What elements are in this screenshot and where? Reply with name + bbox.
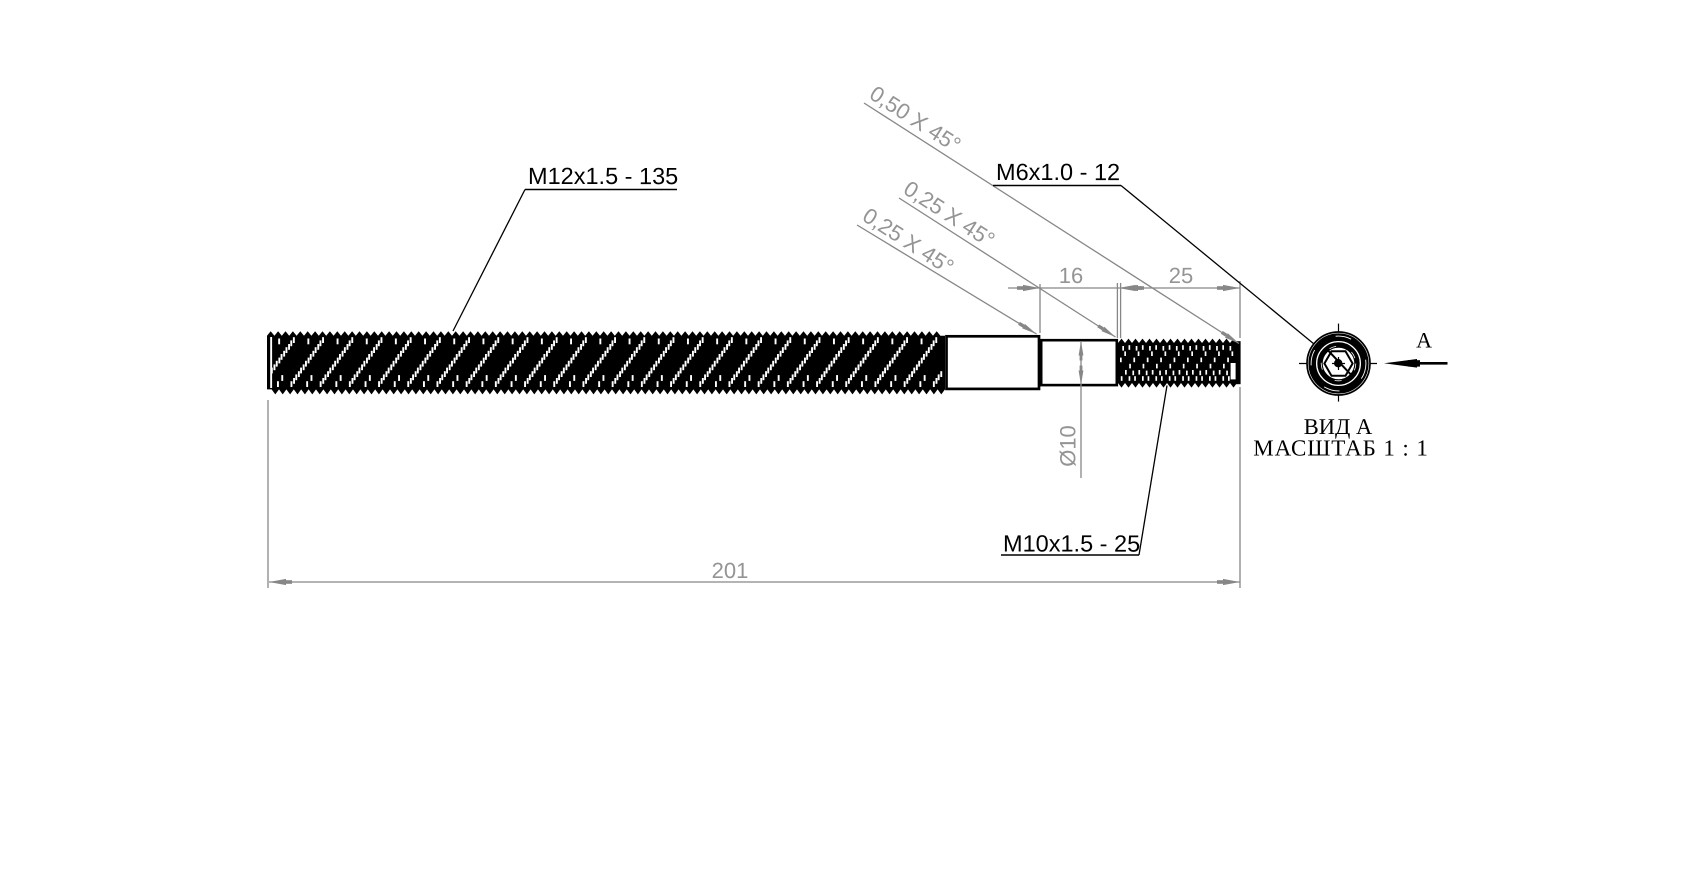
- svg-text:МАСШТАБ 1 : 1: МАСШТАБ 1 : 1: [1253, 435, 1429, 460]
- svg-text:25: 25: [1169, 263, 1194, 288]
- svg-text:16: 16: [1059, 263, 1084, 288]
- svg-text:M12x1.5 - 135: M12x1.5 - 135: [528, 163, 678, 189]
- svg-text:M6x1.0 - 12: M6x1.0 - 12: [996, 159, 1120, 185]
- svg-text:201: 201: [712, 558, 749, 583]
- svg-text:А: А: [1416, 327, 1432, 352]
- svg-text:M10x1.5 - 25: M10x1.5 - 25: [1003, 531, 1140, 557]
- svg-text:Ø10: Ø10: [1056, 425, 1081, 467]
